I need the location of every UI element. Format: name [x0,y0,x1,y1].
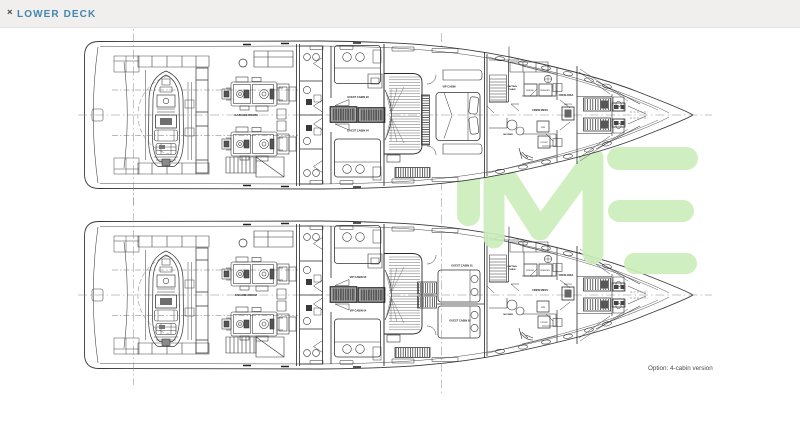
svg-text:FRIDGE: FRIDGE [526,90,534,92]
svg-text:DRYER: DRYER [541,142,549,144]
svg-text:GARAGE ROOM: GARAGE ROOM [234,113,258,117]
svg-text:FRIDGE: FRIDGE [526,270,534,272]
svg-text:W/M: W/M [541,127,545,129]
svg-text:SHOWER: SHOWER [503,314,513,316]
svg-text:CREW MESS: CREW MESS [532,108,548,112]
svg-text:GUEST CABIN 01: GUEST CABIN 01 [451,264,473,268]
svg-text:CAPTAIN: CAPTAIN [507,265,517,268]
svg-text:W/M: W/M [541,307,545,309]
svg-text:FREEZER: FREEZER [540,90,550,92]
svg-text:ENGINE ROOM: ENGINE ROOM [235,293,257,297]
svg-text:VIP CABIN 03: VIP CABIN 03 [350,275,367,279]
svg-text:VIP CABIN: VIP CABIN [442,85,455,89]
svg-text:SHOWER: SHOWER [503,134,513,136]
svg-text:CAPTAIN: CAPTAIN [507,85,517,88]
svg-text:CABIN: CABIN [509,88,516,91]
svg-text:CREW MESS: CREW MESS [532,288,548,292]
svg-text:DRYER: DRYER [541,322,549,324]
svg-text:CREW AREA: CREW AREA [559,94,574,97]
svg-text:VIP CABIN 04: VIP CABIN 04 [350,309,367,313]
svg-text:GUEST CABIN 04: GUEST CABIN 04 [347,129,369,133]
svg-text:CREW AREA: CREW AREA [559,274,574,277]
svg-text:CABIN: CABIN [509,268,516,271]
svg-text:GUEST CABIN 03: GUEST CABIN 03 [347,95,369,99]
svg-text:GUEST CABIN 02: GUEST CABIN 02 [449,319,471,323]
svg-text:FREEZER: FREEZER [540,270,550,272]
